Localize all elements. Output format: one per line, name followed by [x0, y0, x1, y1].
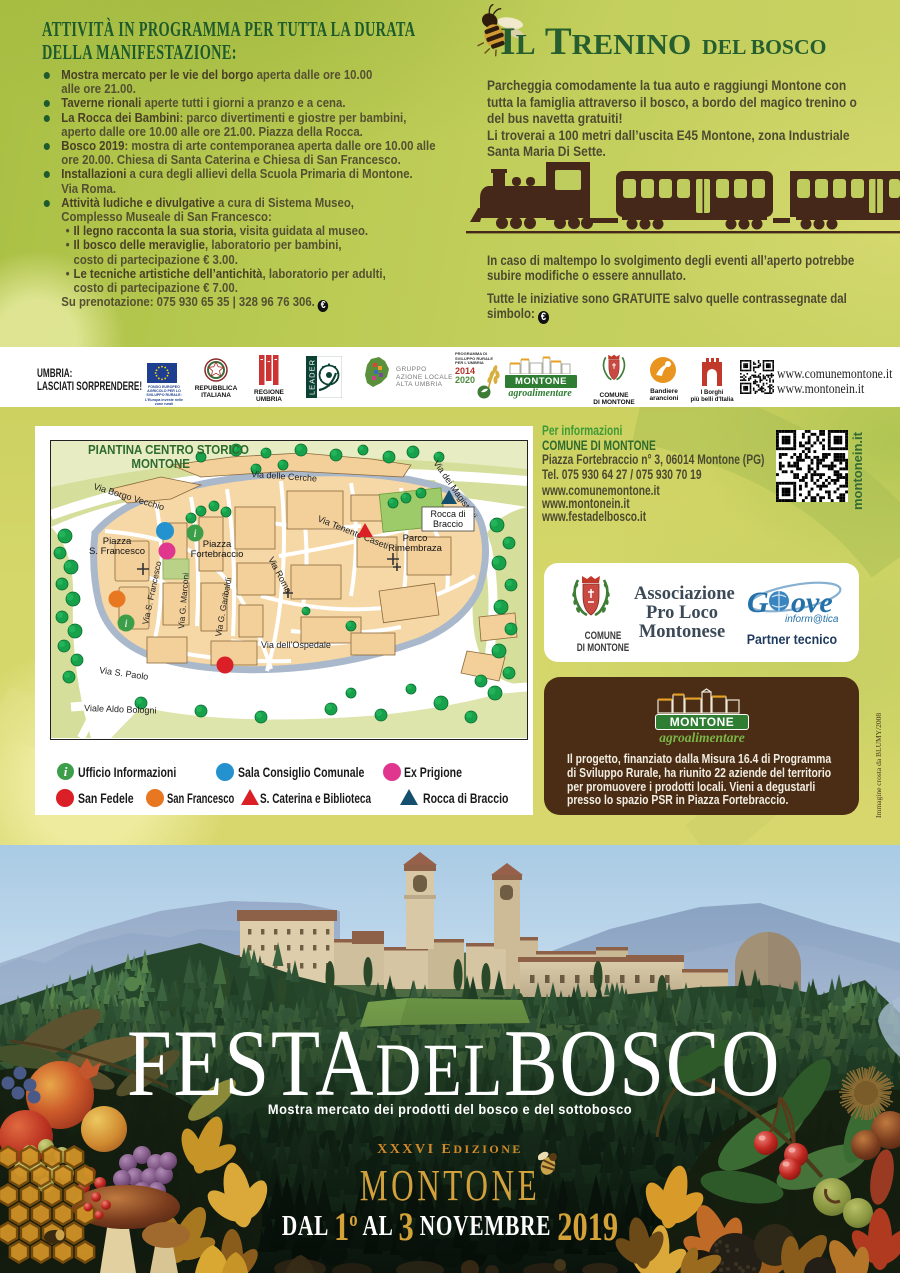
svg-text:i: i [193, 526, 196, 540]
svg-text:Via dell’Ospedale: Via dell’Ospedale [261, 640, 331, 650]
svg-text:LEADER: LEADER [308, 359, 317, 395]
svg-text:Rimembraza: Rimembraza [388, 543, 443, 554]
svg-text:Fortebraccio: Fortebraccio [191, 549, 244, 560]
svg-text:G: G [747, 586, 769, 619]
svg-text:Braccio: Braccio [433, 519, 463, 529]
svg-text:i: i [124, 616, 127, 630]
svg-text:Rocca di: Rocca di [430, 509, 465, 519]
svg-text:S. Francesco: S. Francesco [89, 546, 145, 557]
svg-text:inform@tica: inform@tica [785, 614, 839, 625]
